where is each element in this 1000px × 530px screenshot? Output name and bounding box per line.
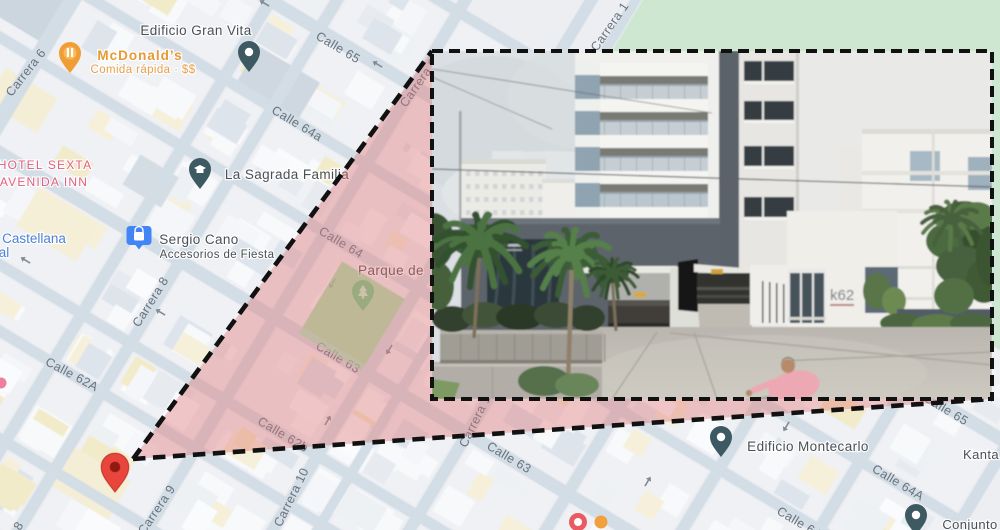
svg-text:La Sagrada Familia: La Sagrada Familia <box>225 167 349 182</box>
svg-text:Comida rápida · $$: Comida rápida · $$ <box>90 64 195 76</box>
svg-text:AVENIDA INN: AVENIDA INN <box>0 175 88 189</box>
svg-text:Conjunto: Conjunto <box>942 517 997 530</box>
svg-text:k62: k62 <box>830 287 854 304</box>
svg-text:Sergio Cano: Sergio Cano <box>159 232 238 247</box>
svg-text:Edificio Gran Vita: Edificio Gran Vita <box>140 23 251 38</box>
svg-text:Edificio Montecarlo: Edificio Montecarlo <box>747 439 869 454</box>
svg-text:Accesorios de Fiesta: Accesorios de Fiesta <box>160 249 275 261</box>
svg-text:al: al <box>0 245 9 260</box>
svg-text:Kanta: Kanta <box>963 447 999 462</box>
svg-text:Castellana: Castellana <box>2 231 66 246</box>
svg-text:HOTEL SEXTA: HOTEL SEXTA <box>0 158 92 172</box>
svg-text:McDonald’s: McDonald’s <box>97 48 182 63</box>
